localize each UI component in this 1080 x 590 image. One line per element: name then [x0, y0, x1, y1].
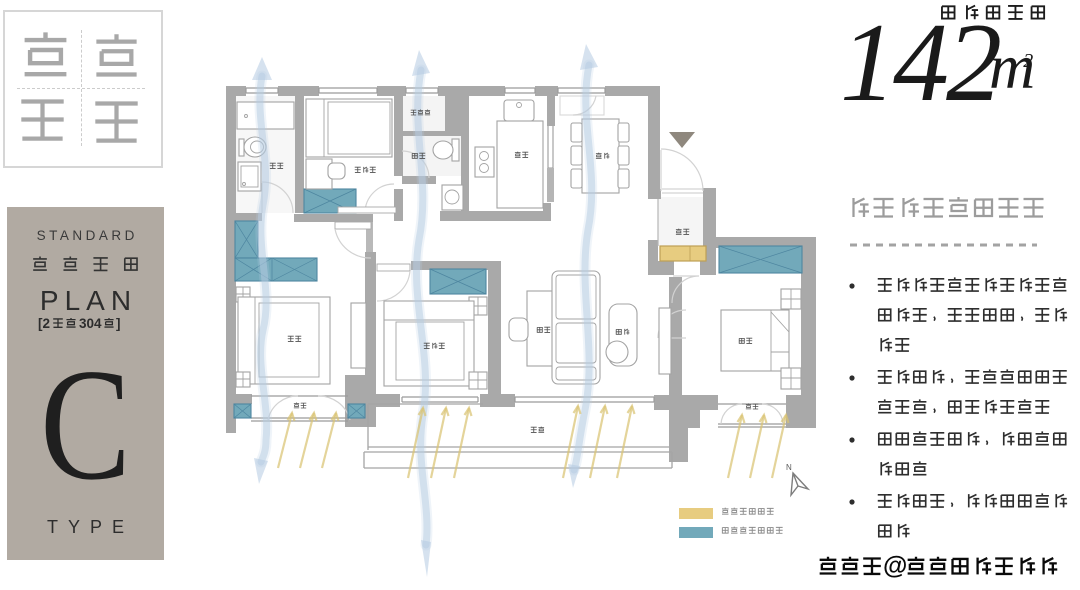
svg-text:[2: [2 — [38, 316, 50, 331]
svg-text:N: N — [786, 463, 792, 472]
svg-text:304: 304 — [79, 316, 102, 331]
svg-text:]: ] — [116, 316, 121, 331]
svg-text:@: @ — [883, 552, 907, 580]
